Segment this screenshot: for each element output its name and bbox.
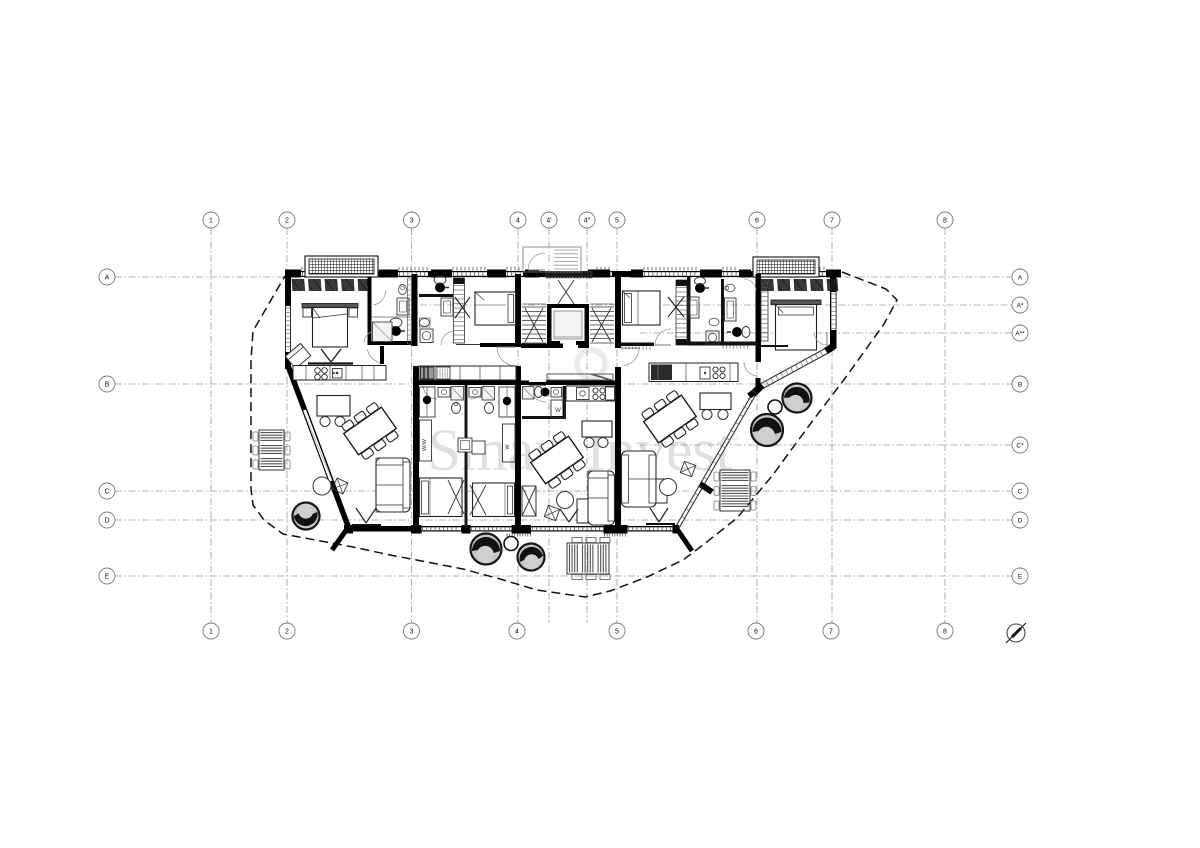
svg-text:6: 6 [755,218,759,225]
svg-text:7: 7 [830,218,834,225]
svg-text:8: 8 [943,629,947,636]
svg-text:2: 2 [285,629,289,636]
svg-text:1: 1 [209,218,213,225]
svg-text:3: 3 [410,218,414,225]
svg-text:8: 8 [943,218,947,225]
svg-text:6: 6 [754,629,758,636]
svg-text:A: A [105,275,110,282]
svg-text:4': 4' [546,218,551,225]
svg-text:5: 5 [615,218,619,225]
svg-text:E: E [1018,574,1023,581]
svg-text:D: D [104,518,109,525]
svg-text:C: C [1018,489,1023,496]
svg-text:E: E [105,574,110,581]
svg-text:C*: C* [1016,443,1024,450]
svg-text:2: 2 [285,218,289,225]
svg-text:4'': 4'' [584,218,591,225]
svg-text:A**: A** [1015,331,1025,338]
svg-text:W: W [505,444,511,450]
svg-text:1: 1 [209,629,213,636]
svg-text:D: D [1018,518,1023,525]
svg-text:A*: A* [1017,303,1024,310]
svg-text:3: 3 [410,629,414,636]
svg-text:W: W [555,408,561,414]
svg-text:B: B [105,382,110,389]
svg-text:W/W: W/W [422,438,428,451]
svg-text:7: 7 [829,629,833,636]
svg-text:B: B [1018,382,1022,389]
svg-text:C: C [104,489,109,496]
svg-text:4: 4 [515,629,519,636]
svg-text:5: 5 [615,629,619,636]
svg-text:A: A [1018,275,1023,282]
svg-text:4: 4 [516,218,520,225]
